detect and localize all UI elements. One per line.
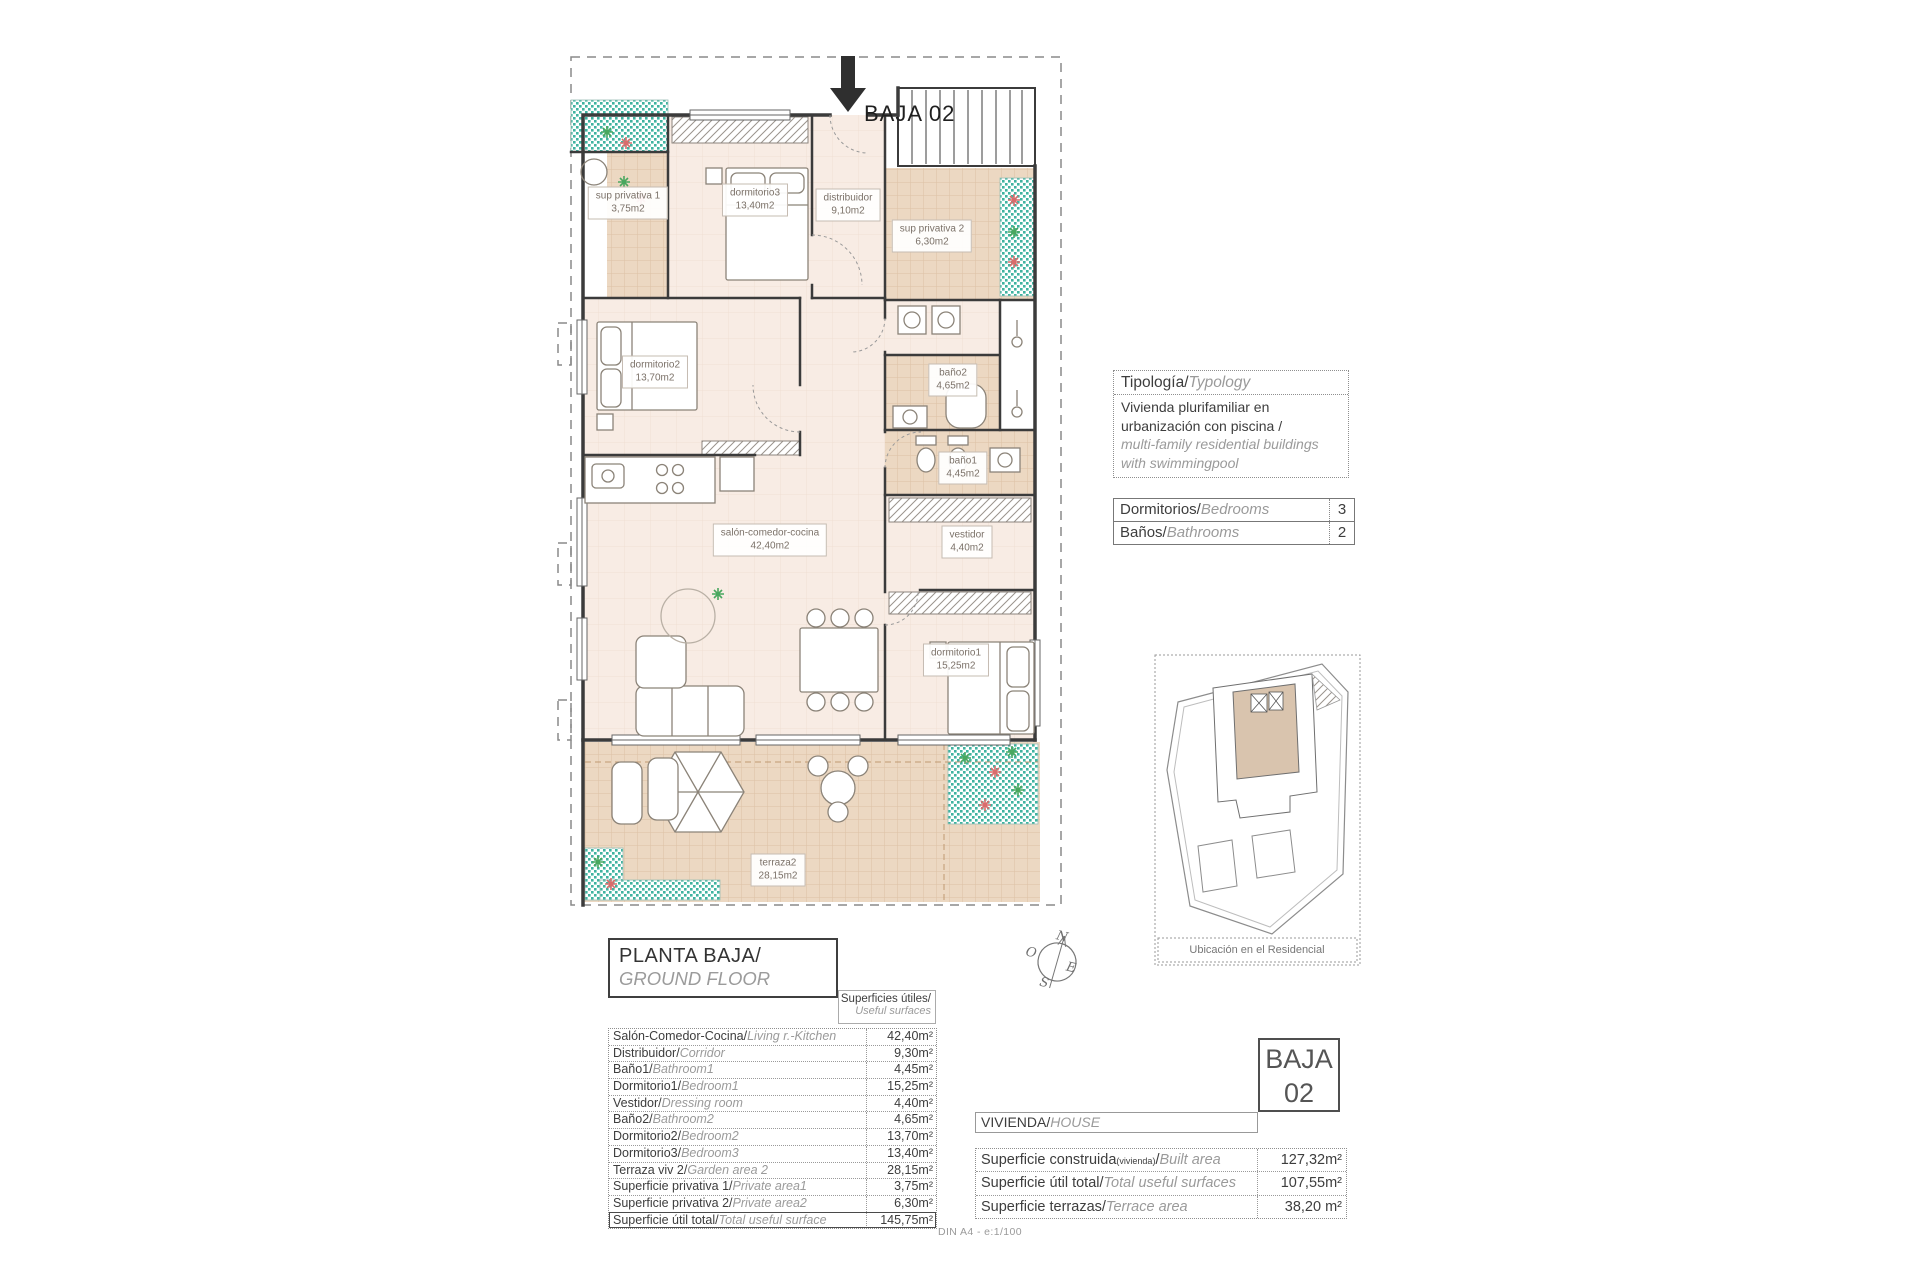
table-row: Dormitorio2/Bedroom2 13,70m² xyxy=(609,1128,936,1145)
row-label: Superficie terrazas/Terrace area xyxy=(976,1196,1257,1218)
row-label-en: Bathroom2 xyxy=(653,1112,714,1126)
room-label-dormitorio1: dormitorio1 15,25m2 xyxy=(923,644,989,677)
room-label-dormitorio3: dormitorio3 13,40m2 xyxy=(722,184,788,217)
row-label-en: Total useful surface xyxy=(719,1213,827,1227)
room-area: 3,75m2 xyxy=(596,203,660,216)
room-area: 6,30m2 xyxy=(900,236,964,249)
row-value: 6,30m² xyxy=(866,1196,936,1212)
room-label-dormitorio2: dormitorio2 13,70m2 xyxy=(622,356,688,389)
row-value: 3 xyxy=(1329,499,1354,521)
row-label-en: Living r.-Kitchen xyxy=(747,1029,836,1043)
room-label-terraza2: terraza2 28,15m2 xyxy=(751,854,806,887)
row-value: 42,40m² xyxy=(866,1029,936,1045)
floor-title-en: GROUND FLOOR xyxy=(619,968,836,990)
unit-id-line1: BAJA xyxy=(1260,1042,1338,1076)
row-label-es: Terraza viv 2/ xyxy=(613,1163,687,1177)
row-label-es: Superficie terrazas/ xyxy=(981,1199,1106,1215)
row-label-es: Dormitorios/ xyxy=(1120,501,1201,518)
row-label: Dormitorio1/Bedroom1 xyxy=(609,1079,866,1095)
table-row: Superficie privativa 2/Private area2 6,3… xyxy=(609,1195,936,1212)
room-area: 4,40m2 xyxy=(949,542,984,555)
room-area: 42,40m2 xyxy=(721,540,819,553)
room-name: dormitorio2 xyxy=(630,360,680,373)
room-label-bano2: baño2 4,65m2 xyxy=(928,364,977,397)
typology-box: Tipología/Typology Vivienda plurifamilia… xyxy=(1113,370,1349,478)
room-name: baño2 xyxy=(936,368,969,381)
table-row: Baño1/Bathroom1 4,45m² xyxy=(609,1061,936,1078)
useful-surfaces-header-en: Useful surfaces xyxy=(839,1005,931,1017)
table-row: Vestidor/Dressing room 4,40m² xyxy=(609,1095,936,1112)
room-name: dormitorio3 xyxy=(730,188,780,201)
row-label-es: Dormitorio2/ xyxy=(613,1129,681,1143)
row-label-es: Dormitorio1/ xyxy=(613,1079,681,1093)
room-name: distribuidor xyxy=(824,193,873,206)
row-label-en: Corridor xyxy=(680,1046,725,1060)
row-label: Superficie privativa 1/Private area1 xyxy=(609,1179,866,1195)
row-label: Dormitorio2/Bedroom2 xyxy=(609,1129,866,1145)
table-row: Baño2/Bathroom2 4,65m² xyxy=(609,1111,936,1128)
typology-body-line: with swimmingpool xyxy=(1121,454,1341,473)
typology-body: Vivienda plurifamiliar en urbanización c… xyxy=(1114,395,1348,477)
row-label-es: Superficie privativa 2/ xyxy=(613,1196,733,1210)
stairs xyxy=(898,88,1035,166)
table-row: Dormitorio1/Bedroom1 15,25m² xyxy=(609,1078,936,1095)
typology-title: Tipología/Typology xyxy=(1114,371,1348,395)
room-name: terraza2 xyxy=(759,858,798,871)
table-row: Terraza viv 2/Garden area 2 28,15m² xyxy=(609,1162,936,1179)
row-label-es: Baño2/ xyxy=(613,1112,653,1126)
typology-body-line: multi-family residential buildings xyxy=(1121,435,1341,454)
row-label: Distribuidor/Corridor xyxy=(609,1046,866,1062)
row-value: 127,32m² xyxy=(1257,1149,1346,1171)
row-label-en: Total useful surfaces xyxy=(1104,1175,1236,1191)
row-label-en: Garden area 2 xyxy=(687,1163,768,1177)
table-row: Baños/Bathrooms 2 xyxy=(1114,521,1354,544)
sheet-scale-note: DIN A4 - e:1/100 xyxy=(880,1226,1080,1238)
row-label-en: Bedroom2 xyxy=(681,1129,739,1143)
room-label-vestidor: vestidor 4,40m2 xyxy=(941,526,992,559)
row-label-es: Superficie útil total/ xyxy=(613,1213,719,1227)
row-value: 13,40m² xyxy=(866,1146,936,1162)
table-row: Dormitorios/Bedrooms 3 xyxy=(1114,499,1354,521)
floor-title-es: PLANTA BAJA/ xyxy=(619,945,836,968)
row-label-es: Vestidor/ xyxy=(613,1096,662,1110)
row-label: Baños/Bathrooms xyxy=(1114,522,1329,544)
row-label: Superficie construida(vivienda)/Built ar… xyxy=(976,1149,1257,1171)
row-label-en: Bedroom1 xyxy=(681,1079,739,1093)
row-value: 107,55m² xyxy=(1257,1172,1346,1194)
typology-title-es: Tipología/ xyxy=(1121,374,1189,391)
room-name: dormitorio1 xyxy=(931,648,981,661)
room-area: 4,45m2 xyxy=(946,468,979,481)
table-row: Superficie terrazas/Terrace area 38,20 m… xyxy=(976,1195,1346,1218)
room-label-salon: salón-comedor-cocina 42,40m2 xyxy=(713,524,827,557)
room-area: 15,25m2 xyxy=(931,660,981,673)
row-label-es: Superficie útil total/ xyxy=(981,1175,1104,1191)
row-label-en: Dressing room xyxy=(662,1096,743,1110)
room-area: 13,40m2 xyxy=(730,200,780,213)
useful-surfaces-header-es: Superficies útiles/ xyxy=(839,993,931,1005)
room-name: baño1 xyxy=(946,456,979,469)
row-label-en: Bedroom3 xyxy=(681,1146,739,1160)
room-name: sup privativa 2 xyxy=(900,224,964,237)
row-label: Terraza viv 2/Garden area 2 xyxy=(609,1163,866,1179)
house-header-bar: VIVIENDA/HOUSE xyxy=(975,1112,1258,1133)
row-value: 2 xyxy=(1329,522,1354,544)
typology-body-line: urbanización con piscina / xyxy=(1121,417,1341,436)
row-value: 15,25m² xyxy=(866,1079,936,1095)
table-row: Dormitorio3/Bedroom3 13,40m² xyxy=(609,1145,936,1162)
row-label: Superficie útil total/Total useful surfa… xyxy=(609,1213,866,1229)
row-label-en: Built area xyxy=(1159,1152,1220,1168)
entrance-unit-label: BAJA 02 xyxy=(864,101,955,127)
row-label: Superficie privativa 2/Private area2 xyxy=(609,1196,866,1212)
house-header-es: VIVIENDA/ xyxy=(981,1114,1050,1130)
row-label: Dormitorio3/Bedroom3 xyxy=(609,1146,866,1162)
row-label: Dormitorios/Bedrooms xyxy=(1114,499,1329,521)
row-label-en: Bathrooms xyxy=(1167,524,1240,541)
row-value: 28,15m² xyxy=(866,1163,936,1179)
house-totals-table: Superficie construida(vivienda)/Built ar… xyxy=(975,1148,1347,1219)
room-area: 13,70m2 xyxy=(630,372,680,385)
typology-body-line: Vivienda plurifamiliar en xyxy=(1121,398,1341,417)
row-value: 4,65m² xyxy=(866,1112,936,1128)
site-plan xyxy=(1155,655,1360,965)
row-label-es: Superficie privativa 1/ xyxy=(613,1179,733,1193)
typology-title-en: Typology xyxy=(1189,374,1251,391)
row-value: 13,70m² xyxy=(866,1129,936,1145)
row-value: 4,40m² xyxy=(866,1096,936,1112)
counts-table: Dormitorios/Bedrooms 3 Baños/Bathrooms 2 xyxy=(1113,498,1355,545)
row-label-es: Distribuidor/ xyxy=(613,1046,680,1060)
site-plan-caption: Ubicación en el Residencial xyxy=(1189,944,1324,956)
room-name: sup privativa 1 xyxy=(596,191,660,204)
table-row: Superficie útil total/Total useful surfa… xyxy=(976,1171,1346,1194)
floor-title-box: PLANTA BAJA/ GROUND FLOOR xyxy=(608,938,838,998)
row-label: Vestidor/Dressing room xyxy=(609,1096,866,1112)
row-label: Salón-Comedor-Cocina/Living r.-Kitchen xyxy=(609,1029,866,1045)
row-label-en: Private area2 xyxy=(733,1196,807,1210)
row-label-es: Salón-Comedor-Cocina/ xyxy=(613,1029,747,1043)
row-value: 3,75m² xyxy=(866,1179,936,1195)
row-value: 4,45m² xyxy=(866,1062,936,1078)
room-label-sup-privativa-2: sup privativa 2 6,30m2 xyxy=(892,220,972,253)
room-name: vestidor xyxy=(949,530,984,543)
row-label-es: Baño1/ xyxy=(613,1062,653,1076)
unit-id-line2: 02 xyxy=(1260,1076,1338,1110)
floorplan-drawing xyxy=(0,0,1920,1280)
row-value: 38,20 m² xyxy=(1257,1196,1346,1218)
table-row: Superficie privativa 1/Private area1 3,7… xyxy=(609,1178,936,1195)
row-label-es: Baños/ xyxy=(1120,524,1167,541)
row-label: Baño1/Bathroom1 xyxy=(609,1062,866,1078)
row-label-en: Private area1 xyxy=(733,1179,807,1193)
useful-surfaces-table: Salón-Comedor-Cocina/Living r.-Kitchen 4… xyxy=(608,1028,937,1229)
row-label: Superficie útil total/Total useful surfa… xyxy=(976,1172,1257,1194)
row-label-es: Dormitorio3/ xyxy=(613,1146,681,1160)
room-area: 9,10m2 xyxy=(824,205,873,218)
room-area: 4,65m2 xyxy=(936,380,969,393)
unit-id-box: BAJA 02 xyxy=(1258,1038,1340,1112)
row-label-note: (vivienda) xyxy=(1116,1156,1155,1166)
room-label-distribuidor: distribuidor 9,10m2 xyxy=(816,189,881,222)
row-label-en: Bedrooms xyxy=(1201,501,1269,518)
room-name: salón-comedor-cocina xyxy=(721,528,819,541)
table-row: Superficie construida(vivienda)/Built ar… xyxy=(976,1149,1346,1171)
room-label-sup-privativa-1: sup privativa 1 3,75m2 xyxy=(588,187,668,220)
row-label: Baño2/Bathroom2 xyxy=(609,1112,866,1128)
room-area: 28,15m2 xyxy=(759,870,798,883)
row-value: 9,30m² xyxy=(866,1046,936,1062)
plan-sheet: BAJA 02 sup privativa 1 3,75m2 dormitori… xyxy=(0,0,1920,1280)
entrance-arrow-icon xyxy=(830,56,866,112)
table-row: Salón-Comedor-Cocina/Living r.-Kitchen 4… xyxy=(609,1029,936,1045)
room-label-bano1: baño1 4,45m2 xyxy=(938,452,987,485)
house-header-en: HOUSE xyxy=(1050,1114,1100,1130)
useful-surfaces-header: Superficies útiles/ Useful surfaces xyxy=(838,990,936,1024)
table-row: Distribuidor/Corridor 9,30m² xyxy=(609,1045,936,1062)
row-label-en: Bathroom1 xyxy=(653,1062,714,1076)
row-label-es: Superficie construida xyxy=(981,1152,1116,1168)
row-label-en: Terrace area xyxy=(1106,1199,1188,1215)
